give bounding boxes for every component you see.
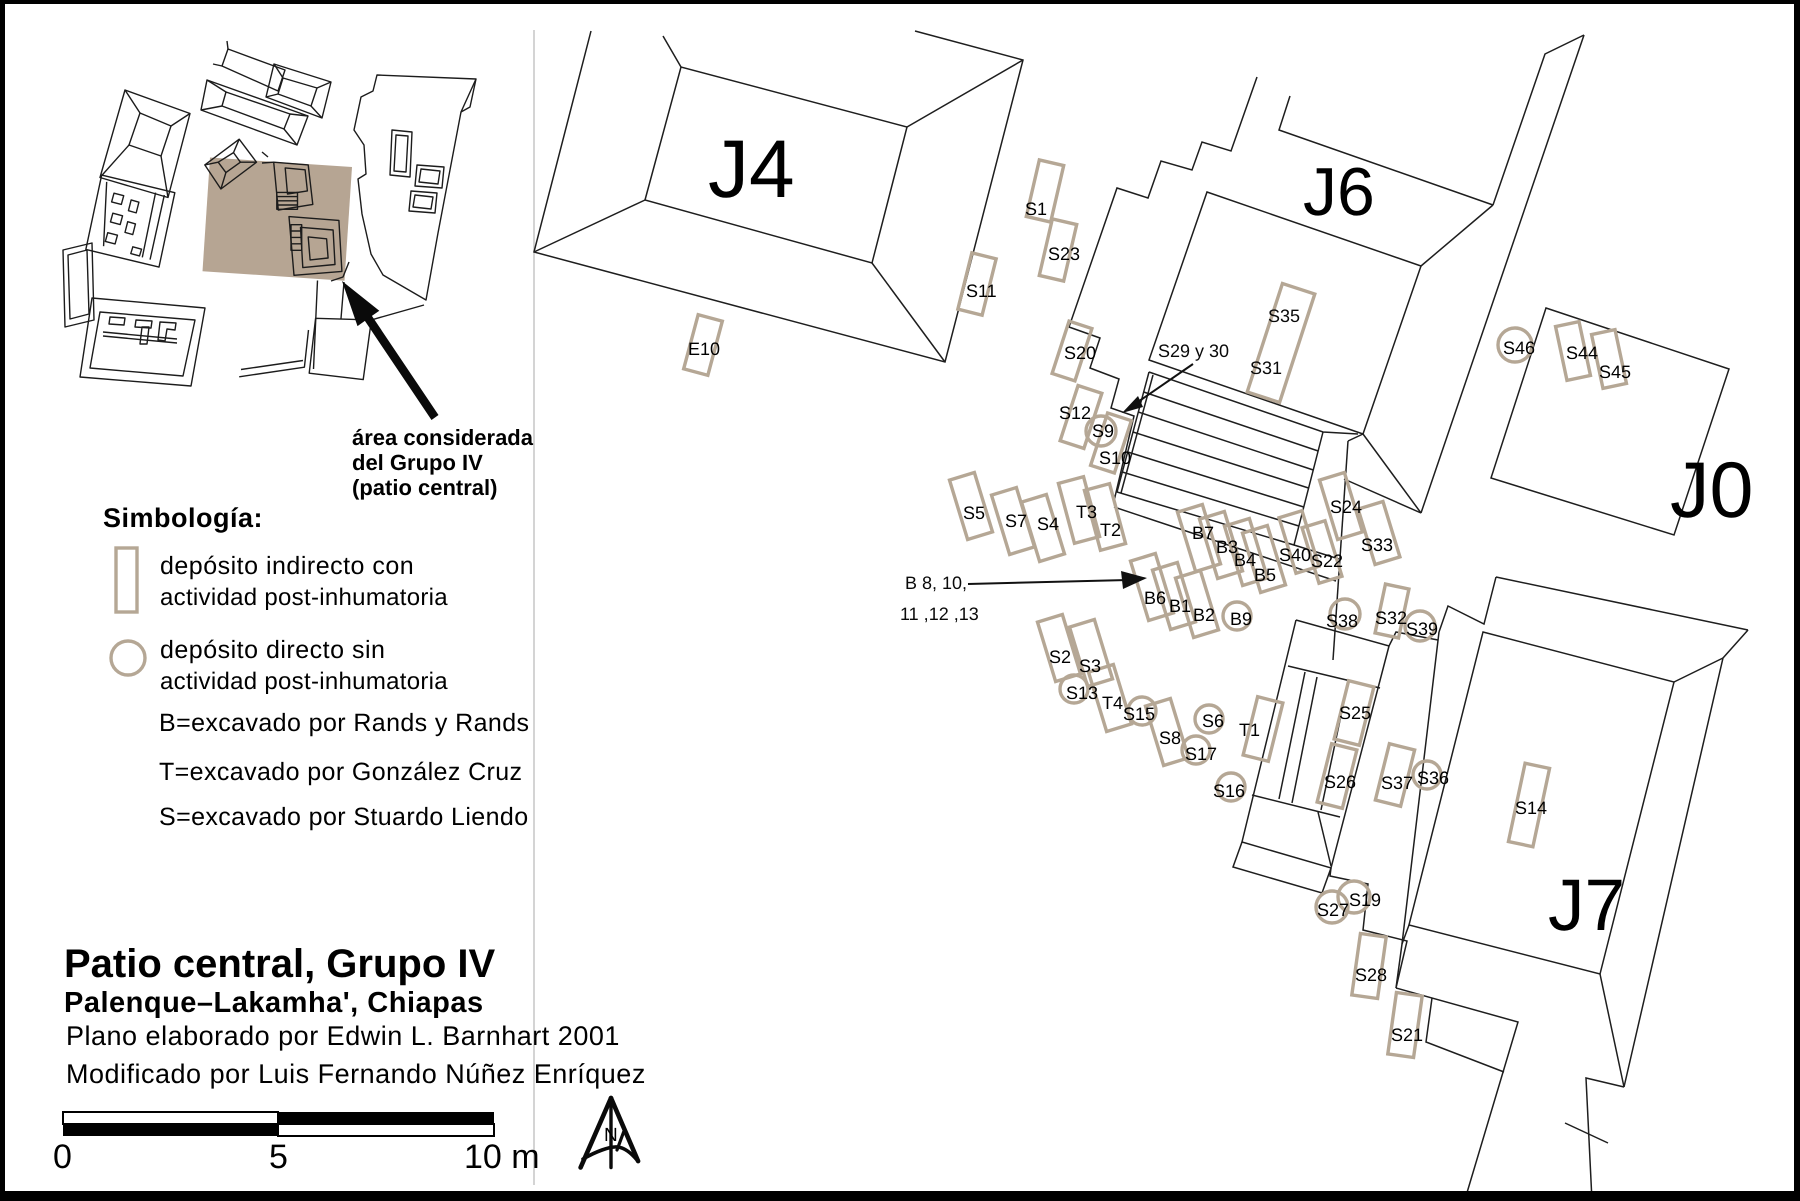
svg-text:(patio central): (patio central) [352, 475, 497, 500]
svg-text:S14: S14 [1515, 798, 1547, 818]
svg-text:B1: B1 [1169, 596, 1191, 616]
svg-text:J7: J7 [1548, 865, 1625, 946]
svg-text:S25: S25 [1339, 703, 1371, 723]
svg-text:S26: S26 [1324, 772, 1356, 792]
svg-text:Palenque–Lakamha', Chiapas: Palenque–Lakamha', Chiapas [64, 987, 484, 1019]
svg-text:S=excavado por Stuardo Liendo: S=excavado por Stuardo Liendo [159, 803, 529, 831]
svg-text:11 ,12 ,13: 11 ,12 ,13 [900, 604, 979, 624]
svg-text:B=excavado por Rands y Rands: B=excavado por Rands y Rands [159, 709, 529, 737]
svg-text:B9: B9 [1230, 609, 1252, 629]
svg-text:T=excavado por González Cruz: T=excavado por González Cruz [159, 758, 522, 786]
svg-text:T2: T2 [1100, 520, 1121, 540]
svg-text:J4: J4 [708, 124, 795, 215]
svg-text:S10: S10 [1099, 448, 1131, 468]
svg-text:actividad post-inhumatoria: actividad post-inhumatoria [160, 584, 448, 611]
svg-text:B 8, 10,: B 8, 10, [905, 573, 967, 593]
svg-text:depósito indirecto con: depósito indirecto con [160, 552, 414, 580]
svg-text:B2: B2 [1193, 605, 1215, 625]
svg-text:B4: B4 [1234, 550, 1256, 570]
svg-text:S40: S40 [1279, 545, 1311, 565]
svg-text:S3: S3 [1079, 656, 1101, 676]
svg-text:T3: T3 [1076, 502, 1097, 522]
svg-text:S12: S12 [1059, 403, 1091, 423]
svg-text:S38: S38 [1326, 611, 1358, 631]
svg-text:10 m: 10 m [464, 1138, 540, 1176]
svg-text:S24: S24 [1330, 497, 1362, 517]
svg-text:S1: S1 [1025, 199, 1047, 219]
svg-text:S22: S22 [1311, 551, 1343, 571]
svg-text:S32: S32 [1375, 608, 1407, 628]
svg-text:N: N [604, 1125, 618, 1146]
svg-text:Simbología:: Simbología: [103, 503, 263, 533]
svg-text:S21: S21 [1391, 1025, 1423, 1045]
svg-text:S9: S9 [1092, 421, 1114, 441]
svg-text:S29 y 30: S29 y 30 [1158, 341, 1229, 361]
svg-text:S2: S2 [1049, 647, 1071, 667]
svg-text:S45: S45 [1599, 362, 1631, 382]
svg-text:S11: S11 [966, 281, 997, 301]
svg-text:S44: S44 [1566, 343, 1598, 363]
svg-text:B7: B7 [1192, 523, 1214, 543]
svg-text:S7: S7 [1005, 511, 1027, 531]
svg-text:Modificado por Luis Fernando N: Modificado por Luis Fernando Núñez Enríq… [66, 1059, 646, 1089]
svg-text:S5: S5 [963, 503, 985, 523]
svg-text:T1: T1 [1239, 720, 1260, 740]
svg-text:del Grupo IV: del Grupo IV [352, 450, 483, 475]
svg-text:S31: S31 [1250, 358, 1282, 378]
svg-text:S8: S8 [1159, 728, 1181, 748]
svg-text:S4: S4 [1037, 514, 1059, 534]
svg-text:T4: T4 [1102, 693, 1123, 713]
svg-text:Plano elaborado por Edwin L. B: Plano elaborado por Edwin L. Barnhart 20… [66, 1021, 620, 1051]
svg-text:0: 0 [53, 1138, 72, 1176]
svg-text:B5: B5 [1254, 565, 1276, 585]
svg-text:S17: S17 [1185, 744, 1217, 764]
svg-text:S16: S16 [1213, 781, 1245, 801]
svg-text:Patio central, Grupo IV: Patio central, Grupo IV [64, 942, 496, 986]
svg-text:E10: E10 [688, 339, 720, 359]
svg-text:S23: S23 [1048, 244, 1080, 264]
svg-text:S36: S36 [1417, 768, 1449, 788]
svg-text:S35: S35 [1268, 306, 1300, 326]
svg-text:depósito directo sin: depósito directo sin [160, 636, 385, 664]
svg-text:S46: S46 [1503, 338, 1535, 358]
svg-text:S13: S13 [1066, 683, 1098, 703]
svg-text:S27: S27 [1317, 900, 1349, 920]
svg-text:S37: S37 [1381, 773, 1413, 793]
svg-text:S6: S6 [1202, 711, 1224, 731]
svg-text:área considerada: área considerada [352, 425, 534, 450]
svg-text:J0: J0 [1670, 445, 1753, 534]
svg-text:S33: S33 [1361, 535, 1393, 555]
svg-text:S15: S15 [1123, 704, 1155, 724]
svg-text:5: 5 [269, 1138, 288, 1176]
svg-text:S20: S20 [1064, 343, 1096, 363]
svg-text:S19: S19 [1349, 890, 1381, 910]
svg-text:J6: J6 [1303, 154, 1375, 230]
svg-text:B6: B6 [1144, 588, 1166, 608]
svg-text:S39: S39 [1406, 619, 1438, 639]
svg-text:S28: S28 [1355, 965, 1387, 985]
svg-text:actividad post-inhumatoria: actividad post-inhumatoria [160, 668, 448, 695]
